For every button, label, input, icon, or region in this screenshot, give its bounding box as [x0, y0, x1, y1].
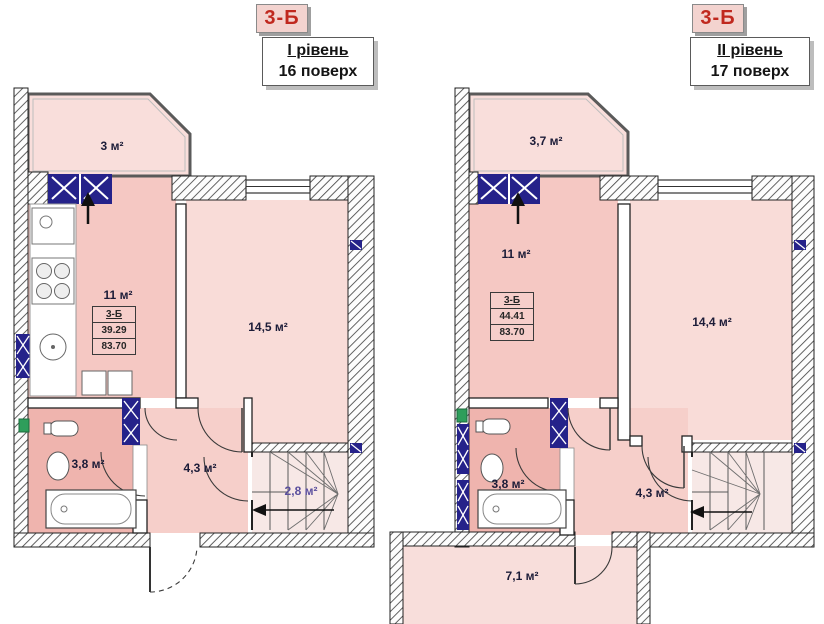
- left-apartment-info-box: 3-Б 39.29 83.70: [92, 306, 136, 355]
- right-apartment-info-box: 3-Б 44.41 83.70: [490, 292, 534, 341]
- left-unit-badge: 3-Б: [256, 4, 308, 33]
- left-floor-label: 16 поверх: [263, 61, 373, 82]
- left-hall-area-label: 4,3 м²: [184, 461, 217, 475]
- left-info-living-area: 39.29: [93, 323, 135, 339]
- right-bedroom-area-label: 14,4 м²: [692, 315, 732, 329]
- right-plan-window: [658, 180, 752, 193]
- toilet: [482, 419, 510, 434]
- stove: [32, 258, 74, 304]
- left-stairs-area-label: 2,8 м²: [285, 484, 318, 498]
- right-unit-badge: 3-Б: [692, 4, 744, 33]
- appliance: [82, 371, 106, 395]
- left-info-total-area: 83.70: [93, 339, 135, 354]
- right-bathroom-area-label: 3,8 м²: [492, 477, 525, 491]
- right-info-living-area: 44.41: [491, 309, 533, 325]
- appliance: [108, 371, 132, 395]
- left-level-label: І рівень: [263, 40, 373, 61]
- right-lower-room-area-label: 7,1 м²: [506, 569, 539, 583]
- vent-shaft: [550, 398, 568, 448]
- left-bathroom-area-label: 3,8 м²: [72, 457, 105, 471]
- right-balcony-area-label: 3,7 м²: [530, 134, 563, 148]
- right-level-label: ІІ рівень: [691, 40, 809, 61]
- floorplan-page: { "colors": { "accent_red": "#c0281e", "…: [0, 0, 824, 624]
- left-plan-window: [246, 180, 310, 193]
- left-info-unit: 3-Б: [93, 307, 135, 323]
- washbasin: [47, 452, 69, 480]
- right-floor-label: 17 поверх: [691, 61, 809, 82]
- right-hall-area-label: 4,3 м²: [636, 486, 669, 500]
- left-balcony-area-label: 3 м²: [101, 139, 124, 153]
- left-level-box: І рівень 16 поверх: [262, 37, 374, 86]
- toilet: [50, 421, 78, 436]
- right-plan: [390, 88, 814, 624]
- balcony-outline: [28, 94, 190, 176]
- left-plan: [14, 88, 374, 592]
- bathtub: [46, 490, 136, 528]
- right-living-area-label: 11 м²: [502, 247, 531, 261]
- right-info-unit: 3-Б: [491, 293, 533, 309]
- vent-shaft: [16, 334, 30, 378]
- right-info-total-area: 83.70: [491, 325, 533, 340]
- left-living-area-label: 14,5 м²: [248, 320, 288, 334]
- right-level-box: ІІ рівень 17 поверх: [690, 37, 810, 86]
- left-kitchen-area-label: 11 м²: [104, 288, 133, 302]
- vent-shaft: [122, 398, 140, 445]
